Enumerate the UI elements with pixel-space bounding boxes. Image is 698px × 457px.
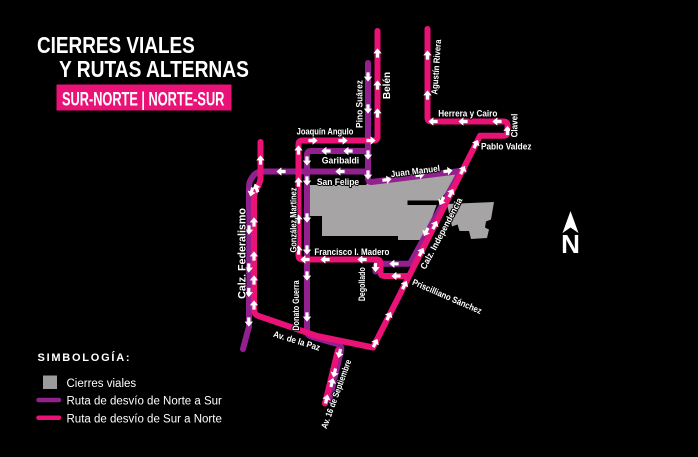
svg-text:Ruta de desvío de Sur a Norte: Ruta de desvío de Sur a Norte [67, 413, 222, 425]
svg-text:Calz. Federalismo: Calz. Federalismo [237, 208, 249, 299]
svg-text:Garibaldi: Garibaldi [322, 156, 359, 166]
svg-text:N: N [561, 229, 580, 259]
svg-text:Francisco I. Madero: Francisco I. Madero [314, 247, 389, 258]
svg-text:González Martínez: González Martínez [289, 187, 299, 252]
svg-text:SUR-NORTE | NORTE-SUR: SUR-NORTE | NORTE-SUR [62, 89, 224, 110]
svg-text:CIERRES VIALES: CIERRES VIALES [37, 32, 195, 58]
svg-text:Joaquín Angulo: Joaquín Angulo [297, 126, 354, 137]
svg-text:SIMBOLOGÍA:: SIMBOLOGÍA: [38, 351, 132, 364]
svg-text:Clavel: Clavel [509, 114, 520, 138]
svg-text:Pablo Valdez: Pablo Valdez [481, 141, 531, 151]
svg-text:Belén: Belén [382, 72, 393, 99]
svg-text:Degollado: Degollado [357, 267, 367, 301]
svg-text:Donato Guerra: Donato Guerra [291, 280, 301, 331]
svg-text:San Felipe: San Felipe [317, 177, 359, 187]
svg-text:Ruta de desvío de Norte a Sur: Ruta de desvío de Norte a Sur [67, 396, 223, 408]
svg-text:Pino Suárez: Pino Suárez [354, 79, 364, 128]
svg-text:Y RUTAS ALTERNAS: Y RUTAS ALTERNAS [59, 56, 249, 82]
svg-text:Cierres viales: Cierres viales [67, 378, 137, 390]
svg-text:Herrera y Cairo: Herrera y Cairo [438, 108, 497, 118]
